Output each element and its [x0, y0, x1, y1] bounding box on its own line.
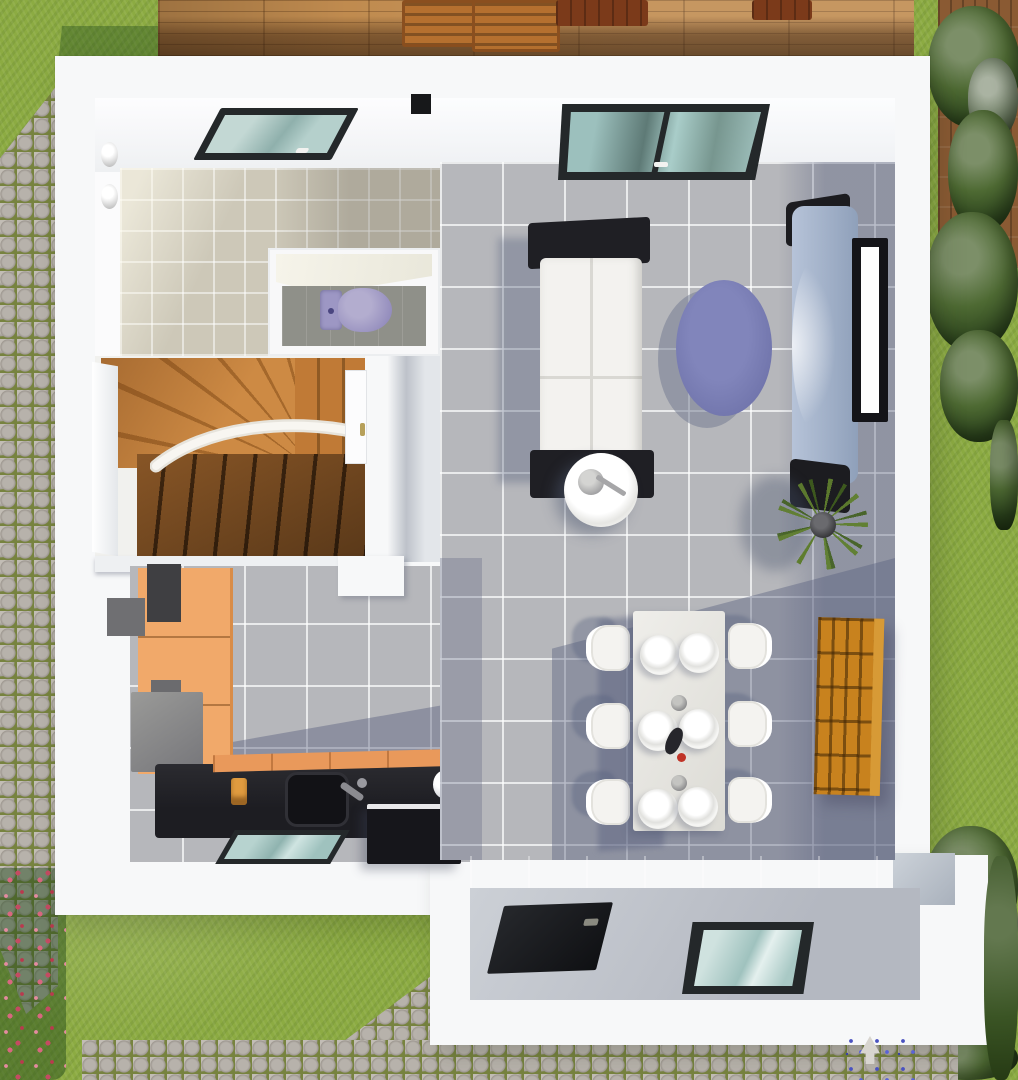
window-glass [205, 115, 347, 153]
room-kitchen [95, 560, 470, 870]
stair-hall-door [345, 370, 367, 464]
dining-set [580, 603, 780, 848]
door-handle-icon [583, 918, 599, 925]
floorplan-scene [0, 0, 1018, 1080]
interior-wall-face [365, 356, 440, 562]
blue-flowers [843, 1032, 923, 1080]
side-window-panel [92, 362, 118, 557]
door-handle-icon [360, 423, 365, 436]
dining-chair [586, 703, 630, 749]
dining-table [633, 611, 725, 831]
room-wc [268, 248, 440, 356]
bathroom-roof-window [193, 108, 359, 160]
room-bathroom [95, 98, 440, 360]
room-stair-hall [95, 356, 365, 562]
tv-console-curve [792, 261, 836, 429]
wall-light [101, 184, 118, 209]
dining-chair [586, 779, 630, 825]
cast-shadow [440, 558, 482, 860]
oven-inset [147, 564, 181, 622]
deck-table [752, 0, 812, 20]
wall-tv [852, 238, 888, 422]
front-door [487, 902, 613, 974]
kitchen-sink [285, 772, 349, 827]
fridge [131, 692, 203, 772]
sofa-cushions [540, 258, 642, 463]
toilet-bowl [338, 288, 392, 332]
wine-bottle-cap [677, 753, 686, 762]
plant-pot [810, 512, 836, 538]
plate [638, 789, 678, 829]
potted-plant [776, 478, 868, 570]
toilet-flush-button [328, 308, 334, 314]
chimney-vent [411, 94, 431, 114]
dining-chair [728, 701, 772, 747]
cube-shelf [814, 617, 885, 796]
plate [679, 633, 719, 673]
kitchen-window [215, 830, 350, 864]
utensil-pot [231, 778, 247, 805]
window-handle-icon [654, 162, 668, 167]
living-room-roof-window [558, 104, 770, 180]
fridge-compressor [107, 598, 145, 636]
tv-console [792, 206, 858, 484]
candle [671, 695, 687, 711]
tree [984, 856, 1018, 1080]
room-living-dining [440, 98, 895, 860]
wall-light [101, 142, 118, 167]
interior-wall-stub [338, 556, 404, 596]
dining-chair [586, 625, 630, 671]
staircase-handrail [150, 408, 365, 478]
plate [640, 635, 680, 675]
plate [678, 787, 718, 827]
round-side-table [564, 453, 638, 527]
cobblestone-path [82, 1040, 958, 1080]
plate [679, 709, 719, 749]
entrance-window [682, 922, 814, 994]
entrance-wall-face [470, 856, 920, 892]
dining-chair [728, 623, 772, 669]
candle [671, 775, 687, 791]
purple-round-rug [676, 280, 772, 416]
room-entrance [470, 856, 920, 1000]
deck-table [556, 0, 648, 26]
dining-chair [728, 777, 772, 823]
bush [990, 420, 1018, 530]
deck-chair [472, 0, 560, 52]
window-glass [224, 835, 341, 859]
window-glass [694, 930, 802, 986]
faucet-base [357, 778, 367, 788]
deck-chair [402, 0, 482, 47]
